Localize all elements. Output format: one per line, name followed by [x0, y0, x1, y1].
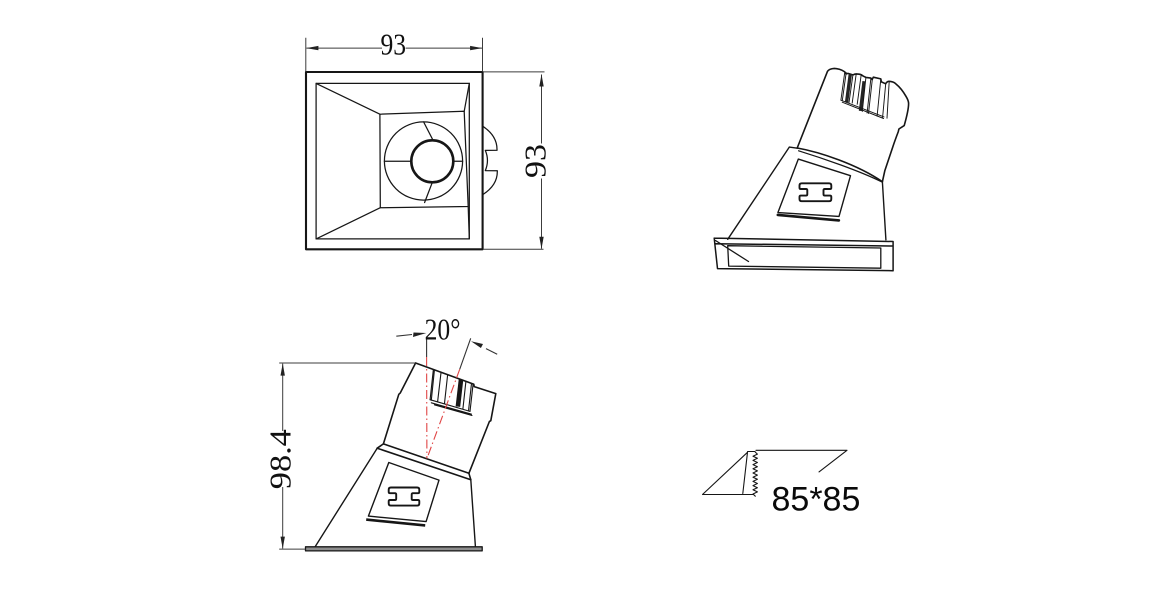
- svg-text:98.4: 98.4: [263, 429, 297, 489]
- svg-text:93: 93: [518, 144, 552, 178]
- svg-text:20°: 20°: [425, 314, 461, 348]
- svg-text:93: 93: [380, 29, 406, 63]
- svg-text:85*85: 85*85: [772, 481, 861, 519]
